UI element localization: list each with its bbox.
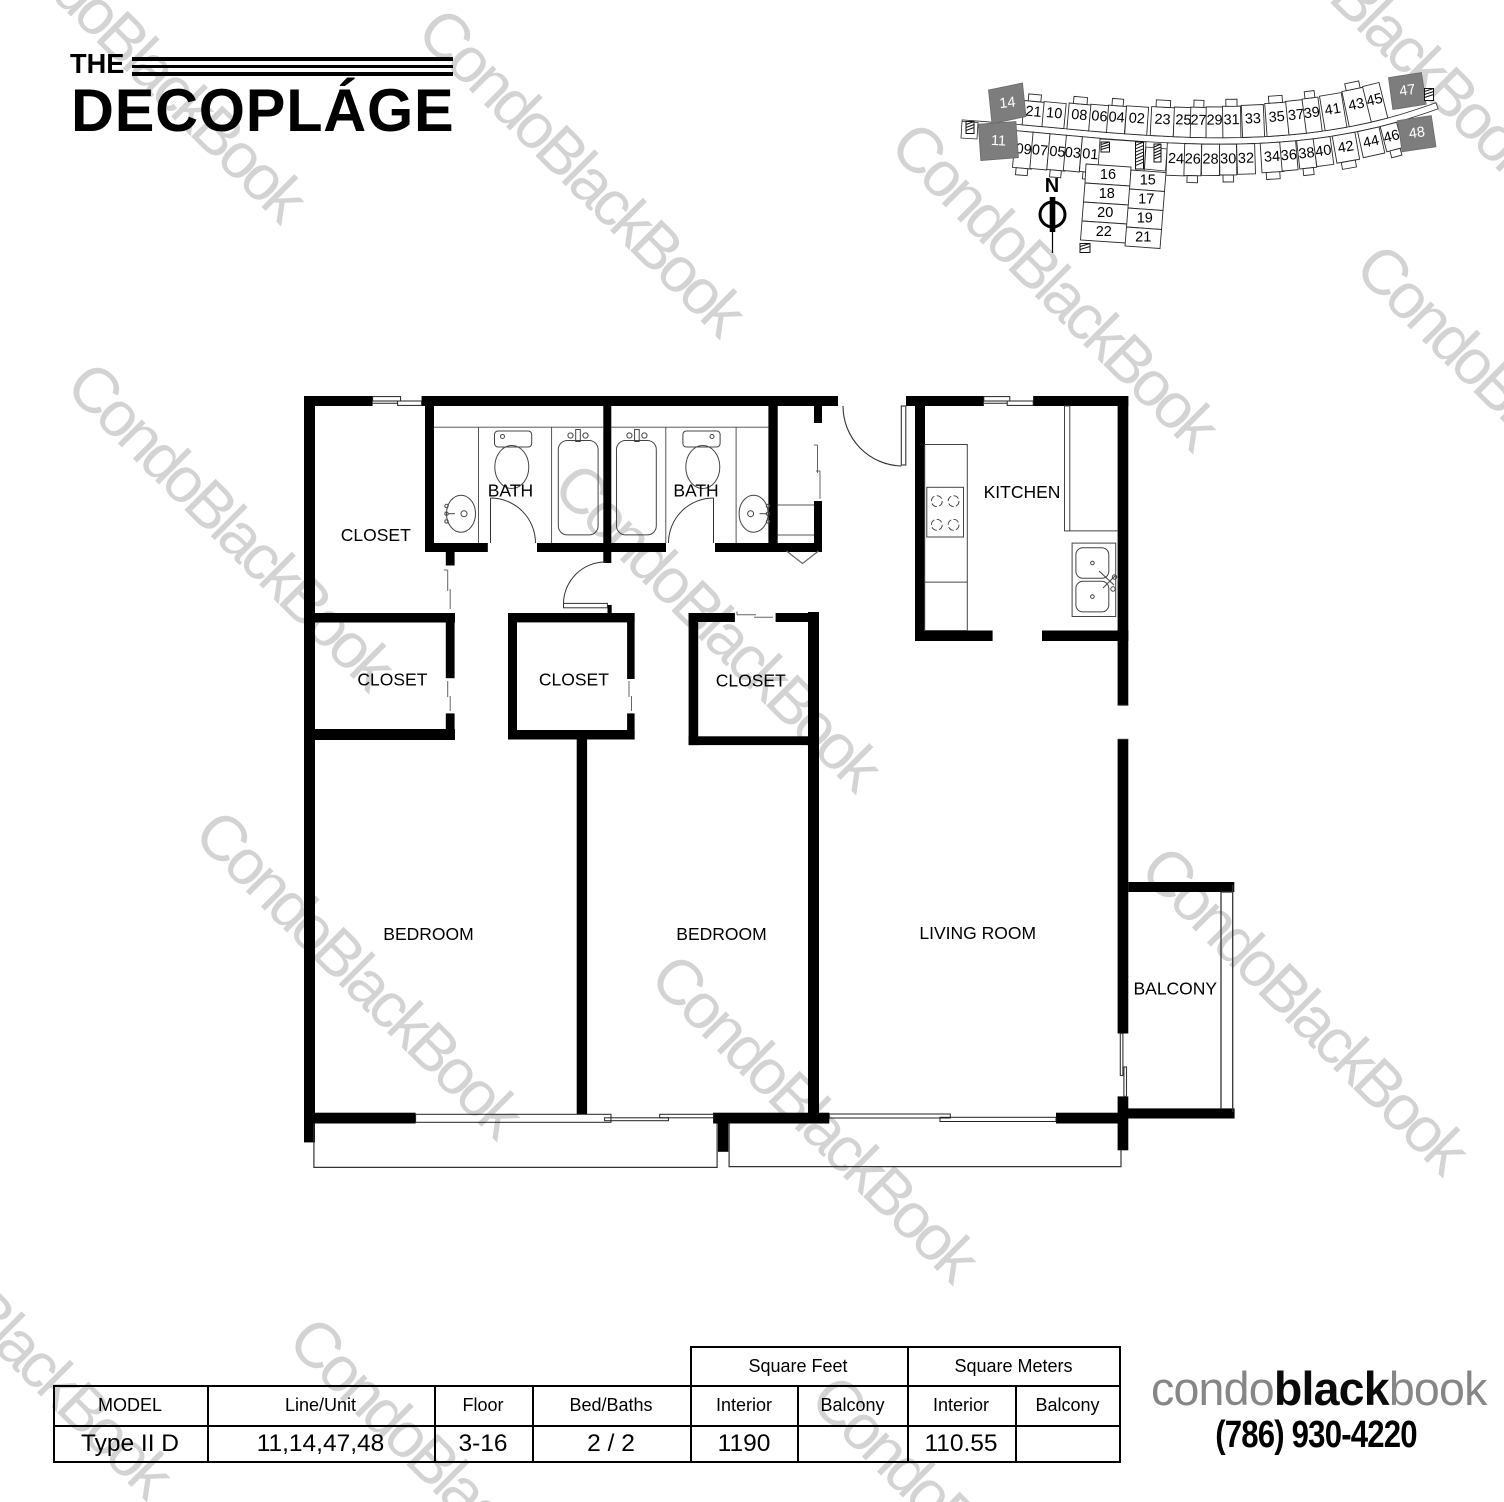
svg-text:10: 10 [1045,105,1063,122]
svg-text:25: 25 [1175,112,1192,129]
svg-text:15: 15 [1140,173,1156,189]
svg-text:41: 41 [1324,101,1343,119]
svg-text:BATH: BATH [488,481,533,501]
svg-text:11: 11 [991,133,1007,150]
svg-text:BALCONY: BALCONY [1133,979,1217,999]
svg-text:39: 39 [1303,104,1321,122]
svg-text:LIVING ROOM: LIVING ROOM [919,923,1036,943]
svg-text:CLOSET: CLOSET [357,669,427,689]
svg-text:CLOSET: CLOSET [539,669,609,689]
svg-text:19: 19 [1137,211,1153,227]
svg-text:48: 48 [1408,124,1426,142]
svg-text:21: 21 [1025,104,1043,121]
svg-text:CLOSET: CLOSET [716,670,786,690]
svg-text:27: 27 [1190,113,1206,129]
svg-text:BEDROOM: BEDROOM [676,924,766,944]
svg-text:BEDROOM: BEDROOM [383,924,473,944]
svg-text:07: 07 [1031,142,1049,159]
svg-text:44: 44 [1362,133,1381,152]
svg-text:17: 17 [1138,192,1154,208]
svg-text:20: 20 [1097,205,1113,221]
svg-text:KITCHEN: KITCHEN [984,482,1061,502]
svg-text:47: 47 [1398,82,1416,100]
svg-text:03: 03 [1064,145,1081,162]
svg-text:42: 42 [1337,138,1356,157]
svg-text:33: 33 [1245,111,1262,128]
svg-text:CLOSET: CLOSET [341,525,411,545]
svg-text:04: 04 [1108,109,1125,126]
svg-text:32: 32 [1238,151,1255,167]
svg-text:01: 01 [1082,146,1099,163]
svg-text:34: 34 [1264,149,1281,166]
svg-text:35: 35 [1268,109,1285,126]
svg-text:22: 22 [1096,224,1112,240]
svg-text:14: 14 [999,95,1017,113]
svg-text:08: 08 [1070,107,1087,124]
svg-text:16: 16 [1100,167,1116,183]
svg-text:28: 28 [1202,152,1218,168]
svg-text:31: 31 [1223,112,1239,128]
svg-text:26: 26 [1185,151,1202,167]
svg-text:06: 06 [1091,108,1108,125]
svg-text:40: 40 [1314,142,1332,160]
svg-text:18: 18 [1099,186,1115,202]
svg-text:23: 23 [1154,112,1171,129]
svg-text:24: 24 [1168,151,1185,168]
svg-text:29: 29 [1206,113,1222,129]
svg-text:BATH: BATH [673,481,718,501]
svg-text:21: 21 [1135,230,1151,246]
svg-text:43: 43 [1347,95,1366,114]
svg-text:02: 02 [1128,110,1145,127]
svg-text:N: N [1045,175,1059,197]
svg-text:38: 38 [1298,145,1316,163]
svg-text:30: 30 [1220,151,1236,167]
svg-text:36: 36 [1280,147,1297,164]
